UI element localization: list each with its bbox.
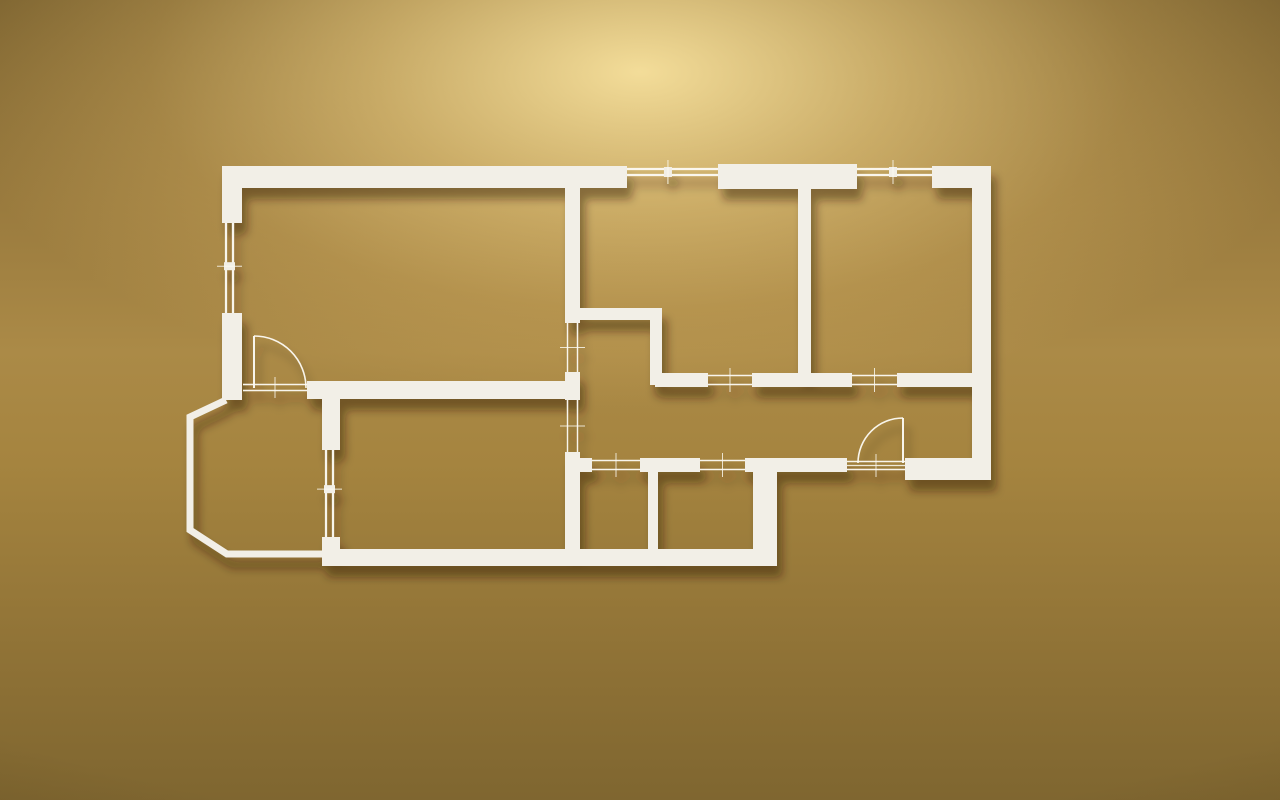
- wall-bath-divider: [648, 472, 658, 552]
- balcony-door: [254, 336, 306, 388]
- wall-bath-top-wall-c: [745, 458, 847, 472]
- wall-outer-left-lower: [222, 313, 242, 400]
- window-top-1: [627, 160, 718, 184]
- wall-bath-top-wall-a: [565, 458, 592, 472]
- balcony-door-swing-arc: [254, 336, 306, 388]
- opening-room3-door: [852, 368, 897, 392]
- threshold-entry-door: [847, 454, 905, 477]
- wall-hall-top-wall: [307, 381, 578, 399]
- wall-outer-top-left: [222, 166, 627, 188]
- wall-outer-bottom: [322, 549, 777, 566]
- wall-core-vertical-mid: [565, 372, 580, 400]
- opening-bath1-door: [592, 453, 640, 477]
- floor-plan-model: [0, 0, 1280, 800]
- opening-core-upper: [560, 323, 585, 372]
- window-top-2: [857, 160, 932, 184]
- opening-bath2-door: [700, 453, 745, 477]
- wall-outer-right: [972, 166, 991, 480]
- wall-balcony-divider-lower: [322, 537, 340, 551]
- balcony-outer-wall: [190, 400, 324, 554]
- wall-core-vertical-upper: [565, 188, 580, 323]
- floor-plan-group: [190, 160, 991, 566]
- opening-core-lower: [560, 400, 585, 452]
- entry-door-swing-arc: [858, 418, 903, 463]
- wall-bath-top-wall-b: [640, 458, 700, 472]
- wall-outer-top-mid: [718, 164, 857, 189]
- wall-kitchen-nook-top: [572, 308, 662, 320]
- golden-wall-background: [0, 0, 1280, 800]
- opening-room2-door: [708, 368, 752, 392]
- wall-bedroom-divider: [798, 188, 811, 376]
- wall-hall-mid-wall-c: [897, 373, 973, 387]
- wall-bath-right-wall: [753, 472, 777, 552]
- wall-hall-mid-wall-a: [655, 373, 708, 387]
- wall-balcony-divider-upper: [322, 399, 340, 450]
- wall-outer-left-upper: [222, 166, 242, 223]
- window-balcony: [317, 450, 342, 537]
- wall-entry-corner-block: [905, 458, 991, 480]
- window-left: [217, 223, 242, 313]
- threshold-balcony-door: [243, 377, 307, 398]
- entry-door: [858, 418, 903, 463]
